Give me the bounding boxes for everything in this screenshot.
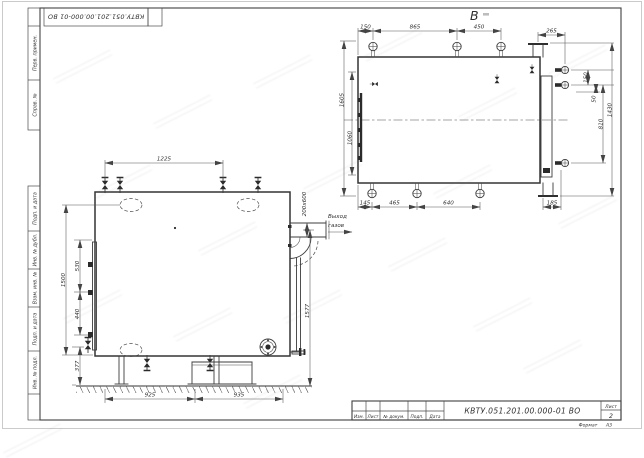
front-right-pipe <box>292 258 305 354</box>
tb-col-podp: Подп. <box>410 414 423 420</box>
plan-inner-valve-1 <box>495 75 500 84</box>
manhole-1 <box>120 199 142 212</box>
dim-label: 145 <box>360 201 371 207</box>
dim-label: 465 <box>389 201 400 207</box>
front-valve-top-3 <box>220 178 227 193</box>
dim-label: 925 <box>145 393 156 399</box>
burner-flange <box>260 339 276 355</box>
front-dim-top: 1225 <box>105 157 223 180</box>
dim-label: 150 <box>584 72 590 83</box>
drawing-sheet: { "stamp": { "doc_number": "КВТУ.051.201… <box>0 0 644 430</box>
dim-label: 1500 <box>61 272 67 287</box>
front-bottom-valve-1 <box>144 356 151 371</box>
dim-label: 865 <box>410 25 421 31</box>
margin-label-vzam-inv: Взам. инв. № <box>33 272 39 305</box>
dim-label: 185 <box>547 201 558 207</box>
margin-label-inv-dubl: Инв. № дубл. <box>33 234 39 267</box>
plan-right-standpipe <box>541 76 552 177</box>
top-view-label-mark <box>483 13 489 16</box>
top-view-label: В <box>470 8 479 23</box>
drawing-canvas: Перв. примен. Справ. № Подп. и дата Инв.… <box>0 0 644 430</box>
plan-flange-top <box>528 44 548 57</box>
plan-right-valve-1 <box>555 66 569 73</box>
dim-label: 440 <box>75 308 81 319</box>
burner-stand <box>188 362 256 384</box>
dim-label: 150 <box>360 25 371 31</box>
outlet-note-line2: газов <box>328 223 344 229</box>
dim-label: 1225 <box>157 157 172 163</box>
front-corner-valve <box>85 338 92 353</box>
tb-sheet-label: Лист <box>604 404 617 410</box>
margin-box-bottom: Подп. и дата Инв. № дубл. Взам. инв. № П… <box>28 186 40 420</box>
outlet-note-line1: Выход <box>328 214 347 220</box>
tb-col-data: Дата <box>428 414 440 420</box>
top-left-stamp: КВТУ.051.201.00.000-01 ВО <box>44 8 162 26</box>
front-valve-top-4 <box>255 178 262 193</box>
ground-hatching <box>76 386 312 393</box>
dim-label: 640 <box>443 201 454 207</box>
plan-right-valve-3 <box>555 159 569 166</box>
tb-format-label: Формат <box>579 423 598 429</box>
dim-label: 200х600 <box>302 191 308 216</box>
dim-label: 935 <box>234 393 245 399</box>
dim-label: 377 <box>75 360 81 371</box>
dim-label: 1605 <box>340 92 346 107</box>
dim-label: 265 <box>546 29 557 35</box>
plan-valve-top-1 <box>369 42 377 57</box>
margin-label-sprav-no: Справ. № <box>33 93 39 116</box>
plan-valve-top-3 <box>497 42 505 57</box>
tb-doc-number: КВТУ.051.201.00.000-01 ВО <box>464 407 580 416</box>
plan-valve-bottom-3 <box>476 183 484 198</box>
plan-dims-bottom: 145 465 640 185 <box>358 170 561 210</box>
front-valve-top-2 <box>117 178 124 193</box>
front-dim-right: 1577 <box>303 230 314 386</box>
gas-outlet-note: Выход газов <box>328 214 352 232</box>
plan-dims-right: 150 50 810 1430 <box>550 43 614 196</box>
margin-label-podp-data-1: Подп. и дата <box>33 192 39 225</box>
front-bottom-valve-2 <box>207 356 214 371</box>
plan-inner-valve-2 <box>530 65 535 74</box>
front-view: Выход газов 200х600 <box>61 157 352 404</box>
tb-col-izm: Изм. <box>354 414 364 420</box>
margin-label-podp-data-2: Подп. и дата <box>33 313 39 346</box>
plan-valve-bottom-1 <box>368 183 376 198</box>
dim-label: 810 <box>599 118 605 129</box>
front-bottom-right-fitting <box>290 348 305 356</box>
front-valve-top-1 <box>102 178 109 193</box>
top-view: В <box>340 8 615 210</box>
plan-valve-bottom-2 <box>413 183 421 198</box>
dim-label: 1577 <box>305 303 311 318</box>
stamp-doc-number: КВТУ.051.201.00.000-01 ВО <box>48 13 144 21</box>
dim-label: 1430 <box>608 102 614 117</box>
tb-sheet-number: 2 <box>609 413 613 420</box>
tb-format-value: А3 <box>605 423 612 429</box>
plan-right-valve-2 <box>555 81 569 88</box>
margin-box-top: Перв. примен. Справ. № <box>28 8 40 130</box>
center-mark <box>174 227 176 229</box>
dim-label: 450 <box>474 25 485 31</box>
plan-dims-left: 1605 1060 <box>340 41 357 196</box>
manhole-2 <box>237 199 259 212</box>
plan-valve-top-2 <box>453 42 461 57</box>
boiler-front-body <box>95 192 290 356</box>
gas-outlet <box>288 221 329 266</box>
plan-inner-fitting-left <box>370 82 378 86</box>
dim-label: 1060 <box>348 130 354 145</box>
plan-flange-bottom <box>538 183 558 196</box>
margin-label-perv-primen: Перв. примен. <box>33 35 39 71</box>
page-border <box>3 2 642 429</box>
dim-label: 50 <box>592 95 598 103</box>
dim-label: 530 <box>75 260 81 271</box>
tb-col-list: Лист <box>367 414 379 420</box>
margin-label-inv-podl: Инв. № подл. <box>33 356 39 389</box>
tb-col-dokum: № докум. <box>382 414 404 420</box>
title-block: Изм. Лист № докум. Подп. Дата КВТУ.051.2… <box>352 401 621 429</box>
manhole-3 <box>120 344 142 357</box>
